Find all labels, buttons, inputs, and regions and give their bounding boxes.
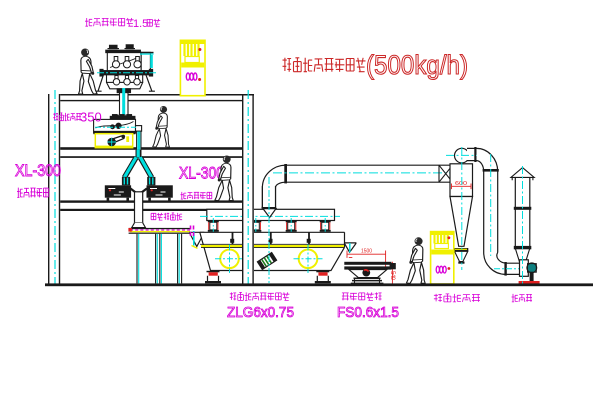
svg-text:1500: 1500	[361, 249, 372, 255]
svg-text:XL-300: XL-300	[179, 164, 224, 183]
svg-text:540: 540	[389, 271, 395, 281]
svg-text:1.5: 1.5	[133, 18, 148, 30]
svg-text:FS0.6x1.5: FS0.6x1.5	[337, 305, 399, 321]
svg-text:600: 600	[455, 181, 467, 187]
svg-text:(500kg/h): (500kg/h)	[366, 50, 468, 80]
svg-text:ZLG6x0.75: ZLG6x0.75	[227, 305, 294, 321]
svg-text:XL-300: XL-300	[15, 161, 61, 180]
svg-text:350: 350	[80, 110, 102, 125]
